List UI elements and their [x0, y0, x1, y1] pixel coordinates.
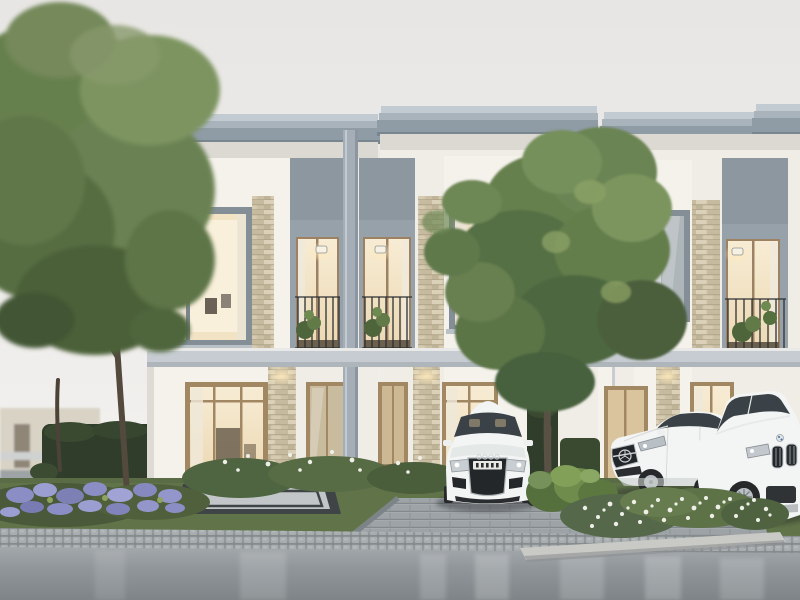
side-mirror [657, 430, 665, 435]
downlight-glow [411, 366, 443, 386]
framed-picture [221, 294, 231, 308]
tree-canopy [0, 2, 220, 355]
distant-door [14, 424, 30, 468]
balcony-center [359, 158, 415, 352]
distant-fence [0, 452, 44, 460]
side-mirror [524, 440, 533, 446]
lower-window-left [306, 382, 348, 468]
interior-desk [216, 428, 240, 462]
curtain [402, 240, 409, 348]
stone-pier-upper-right [692, 200, 720, 350]
license-plate [473, 461, 502, 470]
downlight-glow [266, 366, 298, 386]
scene-canvas [0, 0, 800, 600]
roundel-emblem [777, 435, 784, 442]
curtain [770, 242, 778, 350]
wall-sconce [732, 248, 743, 255]
framed-picture [205, 298, 217, 314]
lower-window-center [378, 382, 408, 468]
downlight-glow [653, 366, 683, 386]
wall-sconce [375, 246, 386, 253]
balcony-right [722, 158, 788, 354]
wall-sconce [316, 246, 327, 253]
stone-pier-upper-left [252, 196, 274, 348]
left-hedge [30, 421, 160, 484]
curtain [237, 214, 246, 340]
balcony-left [290, 158, 343, 352]
side-mirror [443, 440, 452, 446]
architectural-rendering [0, 0, 800, 600]
